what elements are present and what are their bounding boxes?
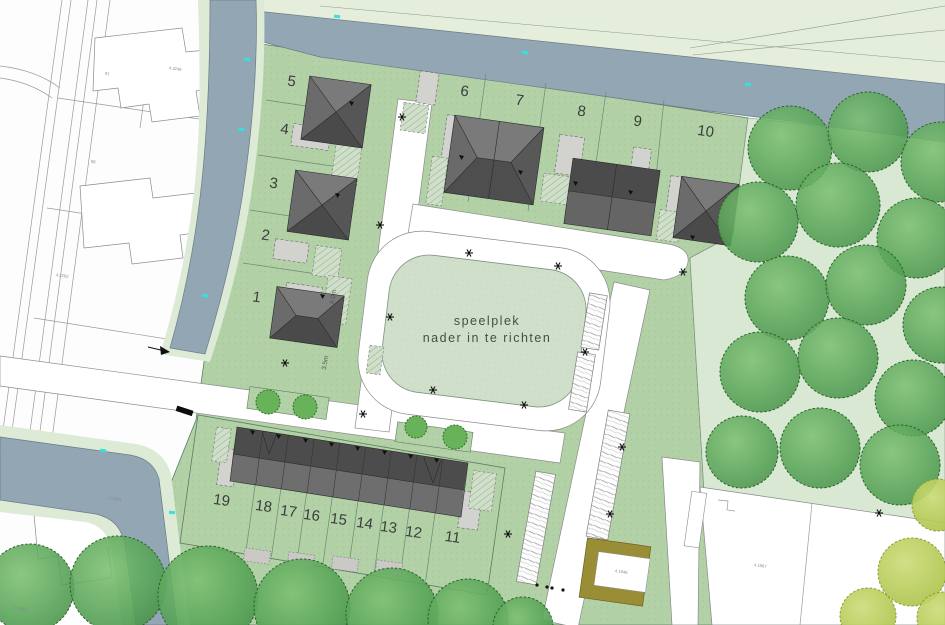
house-lots-4-5 [301,76,371,148]
play-area-label-line1: speelplek [454,314,520,328]
lot-number: 13 [379,518,398,537]
play-area-label-line2: nader in te richten [423,331,552,345]
play-area: speelplek nader in te richten [377,250,590,411]
site-plan-page: speelplek nader in te richten [0,0,945,625]
lot-number: 17 [279,502,298,521]
lot-number: 14 [355,514,374,533]
lot-number: 12 [404,523,423,542]
lot-number: 16 [302,506,321,525]
lot-number: 18 [254,497,273,516]
site-plan-map: speelplek nader in te richten [0,0,945,625]
house-lots-6-7 [444,115,544,205]
lot-number: 11 [444,528,462,547]
lot-number: 10 [696,122,715,141]
lot-number: 15 [329,510,348,529]
house-lots-2-3 [287,170,357,240]
house-lots-8-9 [564,158,660,236]
lot-number: 19 [212,491,231,510]
